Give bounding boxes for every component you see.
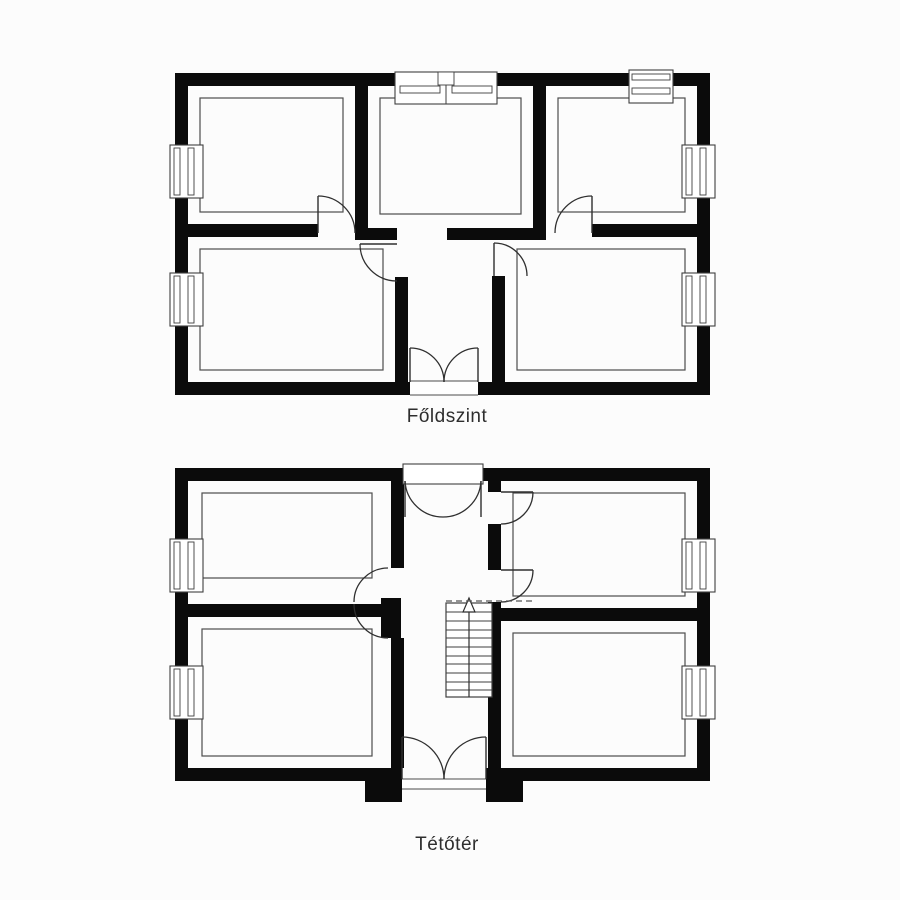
window-icon xyxy=(682,273,715,326)
wall-segment xyxy=(488,524,501,570)
window-pane xyxy=(400,86,440,93)
wall-segment xyxy=(188,604,391,617)
window-pane xyxy=(686,669,692,716)
wall-segment xyxy=(486,779,523,802)
window-icon xyxy=(170,539,203,592)
wall-segment xyxy=(355,86,368,240)
window-pane xyxy=(700,148,706,195)
window-vent xyxy=(438,72,454,85)
wall-segment xyxy=(175,73,188,395)
window-icon xyxy=(629,70,673,103)
attic-floor-label: Tétőtér xyxy=(415,834,479,856)
wall-segment xyxy=(381,598,401,638)
window-pane xyxy=(174,276,180,323)
window-pane xyxy=(686,542,692,589)
wall-segment xyxy=(395,277,408,382)
window-pane xyxy=(700,669,706,716)
window-pane xyxy=(188,669,194,716)
window-icon xyxy=(682,539,715,592)
window-icon xyxy=(170,273,203,326)
window-pane xyxy=(686,276,692,323)
wall-segment xyxy=(492,276,505,382)
wall-segment xyxy=(365,779,402,802)
window-pane xyxy=(174,542,180,589)
staircase xyxy=(446,598,492,697)
window-pane xyxy=(686,148,692,195)
wall-segment xyxy=(697,73,710,395)
door-sill-fill xyxy=(410,381,478,395)
wall-segment xyxy=(447,228,546,240)
double-window-icon xyxy=(395,72,497,104)
door-sill xyxy=(402,779,486,789)
floorplan-page: Főldszint Tétőtér xyxy=(0,0,900,900)
window-icon xyxy=(682,666,715,719)
floorplan-canvas xyxy=(0,0,900,900)
wall-segment xyxy=(488,481,501,492)
wall-segment xyxy=(481,468,710,481)
wall-segment xyxy=(175,382,410,395)
wall-segment xyxy=(175,468,188,781)
wall-segment xyxy=(355,228,397,240)
window-pane xyxy=(174,148,180,195)
wall-segment xyxy=(592,224,697,237)
wall-segment xyxy=(478,382,710,395)
door-sill xyxy=(410,381,478,395)
window-pane xyxy=(188,542,194,589)
window-pane xyxy=(174,669,180,716)
window-pane xyxy=(700,276,706,323)
window-icon xyxy=(170,145,203,198)
wall-segment xyxy=(175,468,405,481)
window-pane xyxy=(632,88,670,94)
wall-segment xyxy=(391,481,404,568)
window-pane xyxy=(188,148,194,195)
window-pane xyxy=(188,276,194,323)
wall-segment xyxy=(488,608,697,621)
ground-floor-label: Főldszint xyxy=(407,406,488,428)
window-pane xyxy=(452,86,492,93)
door-frame xyxy=(403,464,483,484)
window-pane xyxy=(700,542,706,589)
wall-segment xyxy=(697,468,710,781)
wall-segment xyxy=(188,224,318,237)
window-icon xyxy=(682,145,715,198)
door-sill-fill xyxy=(402,779,486,789)
window-pane xyxy=(632,74,670,80)
wall-segment xyxy=(533,86,546,240)
window-icon xyxy=(170,666,203,719)
